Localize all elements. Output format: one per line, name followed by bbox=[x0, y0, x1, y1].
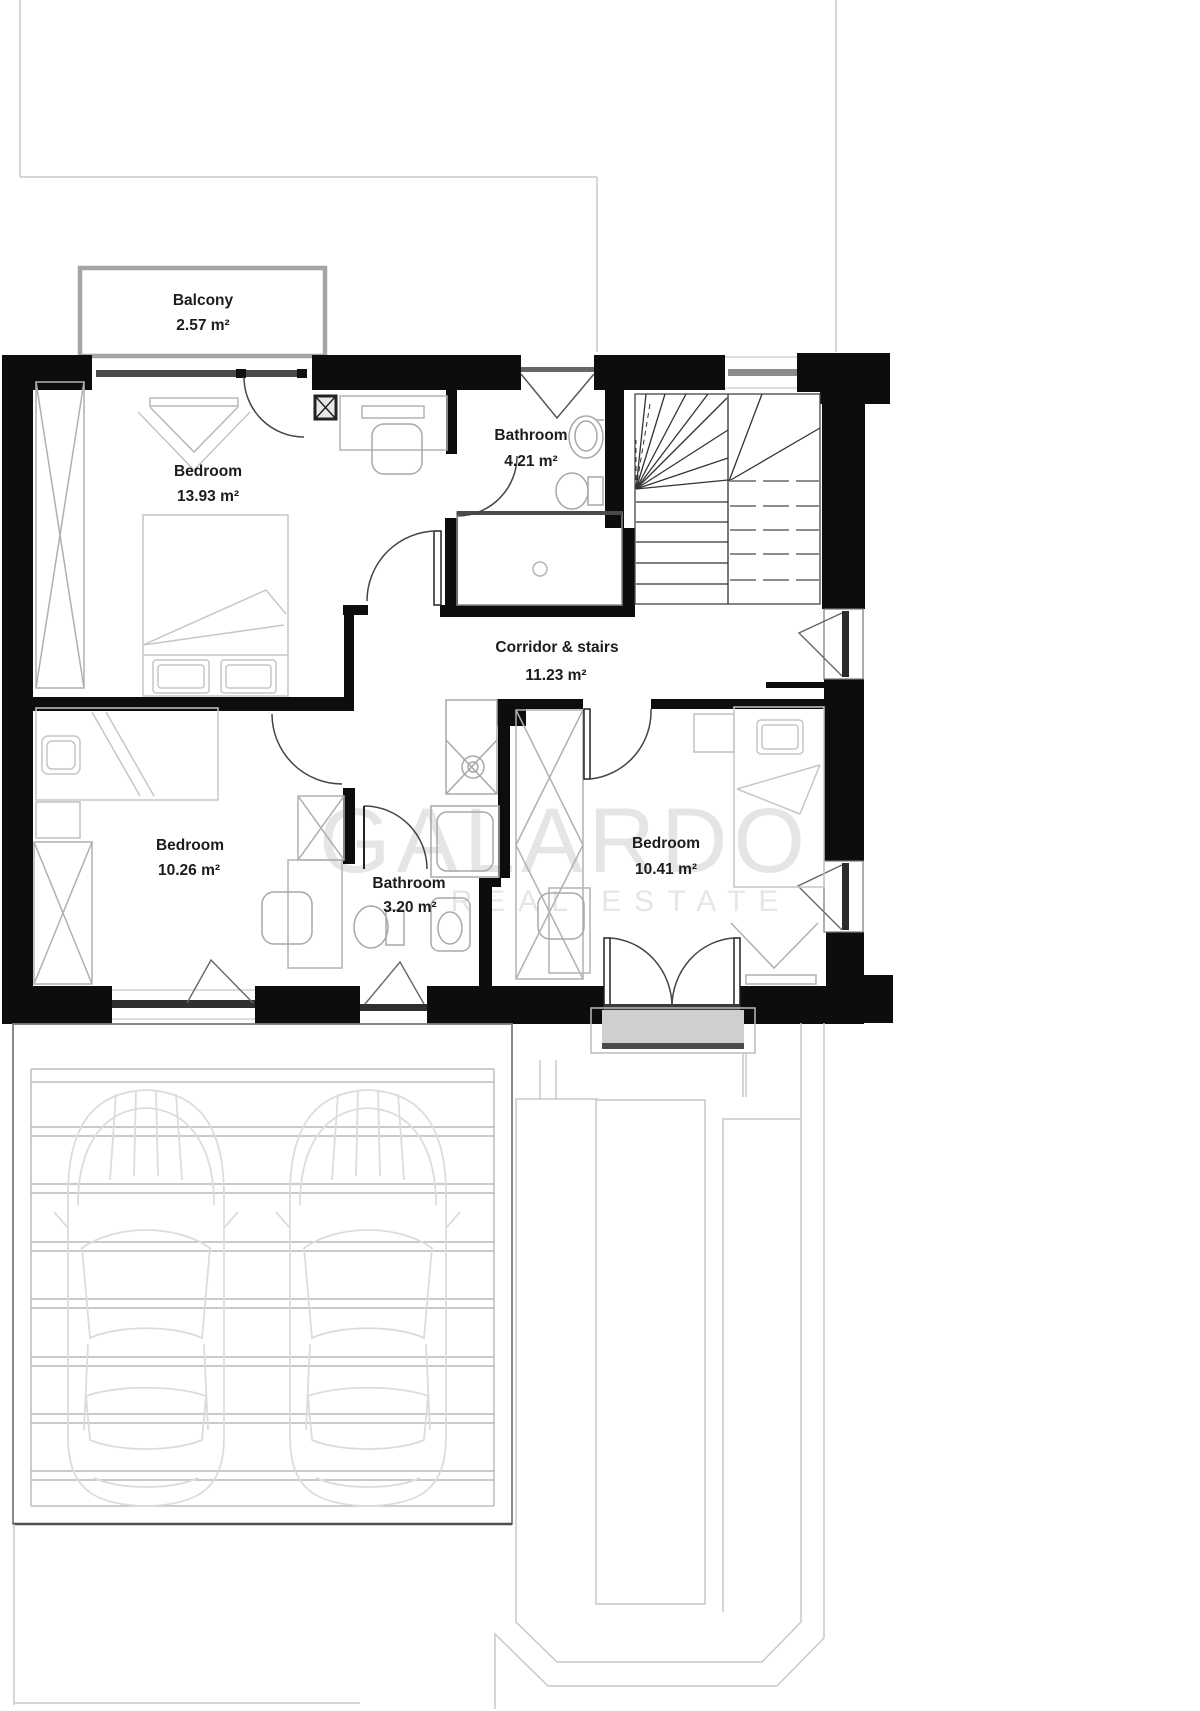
svg-text:13.93 m²: 13.93 m² bbox=[177, 488, 239, 505]
svg-text:4.21 m²: 4.21 m² bbox=[504, 453, 557, 470]
svg-text:3.20 m²: 3.20 m² bbox=[383, 899, 436, 916]
svg-text:Balcony: Balcony bbox=[173, 292, 234, 309]
svg-text:Bedroom: Bedroom bbox=[156, 837, 224, 854]
svg-text:REAL ESTATE: REAL ESTATE bbox=[451, 885, 792, 918]
svg-text:2.57 m²: 2.57 m² bbox=[176, 317, 229, 334]
svg-text:10.41 m²: 10.41 m² bbox=[635, 861, 697, 878]
svg-text:Bedroom: Bedroom bbox=[174, 463, 242, 480]
svg-text:Bathroom: Bathroom bbox=[494, 427, 567, 444]
svg-text:Bedroom: Bedroom bbox=[632, 835, 700, 852]
svg-text:11.23 m²: 11.23 m² bbox=[525, 667, 586, 684]
svg-text:Bathroom: Bathroom bbox=[372, 875, 445, 892]
svg-text:Corridor & stairs: Corridor & stairs bbox=[495, 639, 618, 656]
svg-text:10.26 m²: 10.26 m² bbox=[158, 862, 220, 879]
